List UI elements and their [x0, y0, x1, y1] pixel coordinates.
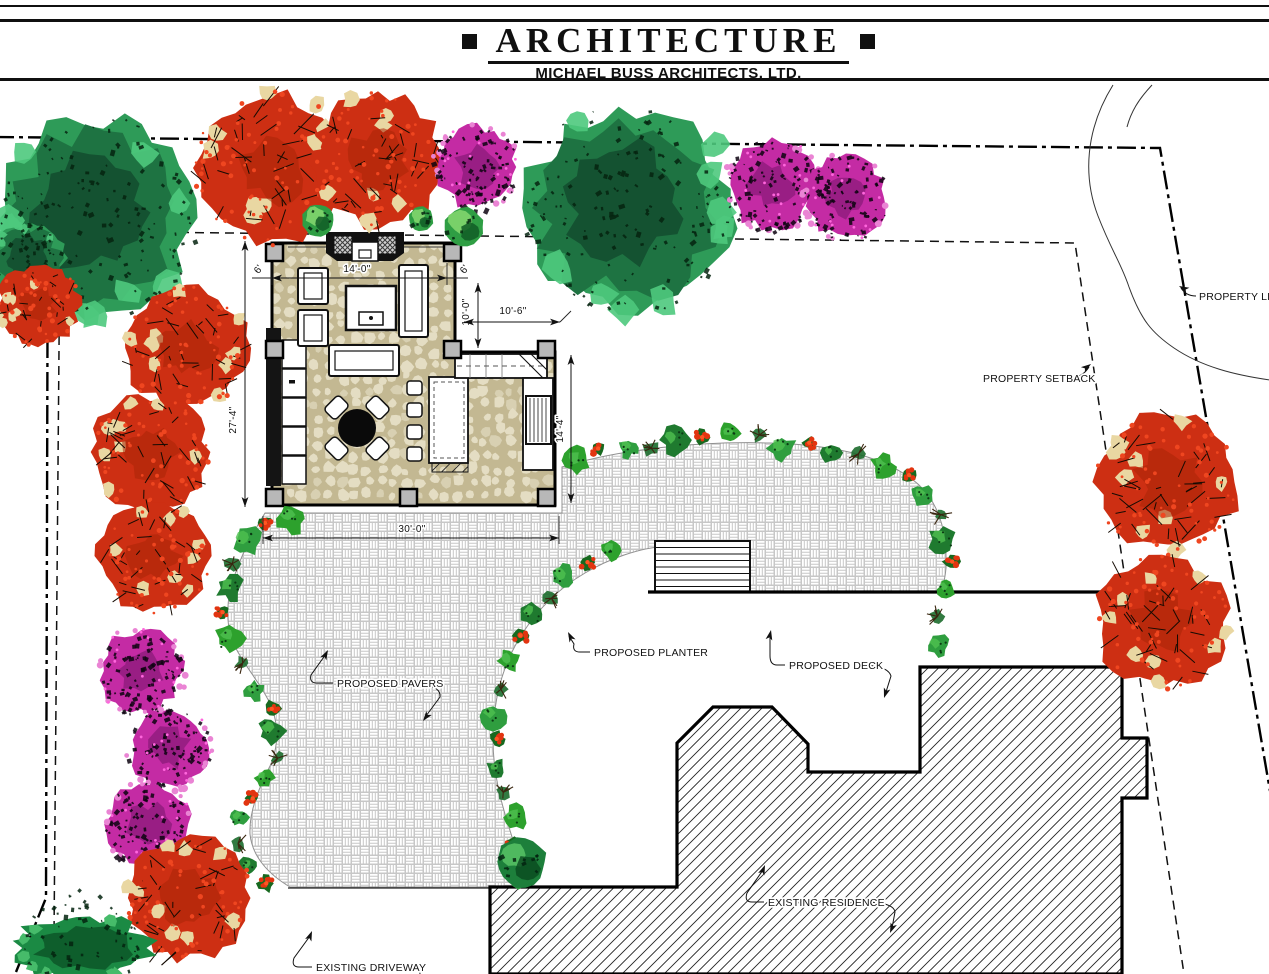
leader-arrow: [1081, 361, 1093, 372]
firm-title: ARCHITECTURE: [488, 23, 850, 64]
title-rule-bottom: [0, 78, 1269, 81]
pavilion-pier: [266, 489, 283, 506]
tree-red: [91, 394, 211, 511]
pavilion-pier: [538, 489, 555, 506]
title-square-left: [462, 34, 477, 49]
pavilion-pier: [538, 341, 555, 358]
dining-table: [338, 409, 376, 447]
leader-arrow: [305, 930, 315, 942]
landscape-plan-page: 14'-0"6'6'10'-0"10'-6"14'-4"27'-4"30'-0"…: [0, 0, 1269, 974]
tree-red: [1092, 409, 1238, 559]
annotation-text: PROPOSED PLANTER: [594, 647, 708, 659]
tree-magenta: [124, 707, 214, 793]
dimension-text: 6': [458, 263, 472, 276]
dimension-text: 14'-4": [555, 415, 566, 442]
dimension-text: 14'-0": [343, 264, 370, 275]
annotation-property-setback: PROPERTY SETBACK: [983, 361, 1096, 385]
tree-magenta: [97, 628, 189, 716]
dimension-text: 10'-6": [499, 306, 526, 317]
tree-magenta: [724, 137, 821, 235]
title-rule-top: [0, 5, 1269, 7]
dimension-text: 6': [252, 263, 266, 276]
pavilion: [266, 232, 557, 506]
pavilion-pier: [444, 244, 461, 261]
annotation-text: PROPOSED DECK: [789, 660, 883, 672]
pavilion-pier: [400, 489, 417, 506]
ground-surfaces: [228, 443, 1147, 974]
tree-magenta: [431, 122, 517, 215]
annotation-text: EXISTING DRIVEWAY: [316, 962, 426, 974]
existing-walk-curve: [1089, 85, 1269, 380]
dimension-dim-6-left: 6': [252, 263, 266, 276]
dimension-text: 30'-0": [398, 524, 425, 535]
pavilion-pier: [444, 341, 461, 358]
leader-arrow: [565, 630, 576, 642]
annotation-property-line: PROPERTY LINE: [1177, 283, 1269, 303]
dimension-dim-6-right: 6': [458, 263, 472, 276]
annotation-text: PROPOSED PAVERS: [337, 678, 443, 690]
tree-red: [95, 498, 212, 615]
tree-green: [522, 107, 737, 327]
pavilion-pier: [266, 244, 283, 261]
fireplace: [326, 232, 404, 261]
annotation-text: PROPERTY SETBACK: [983, 373, 1096, 385]
existing-walk-curve: [1127, 85, 1152, 127]
annotation-text: EXISTING RESIDENCE: [768, 897, 885, 909]
tree-ball: [409, 206, 433, 231]
title-square-right: [860, 34, 875, 49]
dimension-dim-10-0: 10'-0": [461, 283, 481, 348]
site-plan-drawing: 14'-0"6'6'10'-0"10'-6"14'-4"27'-4"30'-0"…: [0, 0, 1269, 974]
tree-red: [1096, 554, 1235, 691]
patio-steps: [655, 541, 750, 592]
pavilion-pier: [266, 341, 283, 358]
bar-island: [407, 377, 468, 472]
annotation-text: PROPERTY LINE: [1199, 291, 1269, 303]
dimension-text: 27'-4": [228, 406, 239, 433]
title-block: ARCHITECTURE MICHAEL BUSS ARCHITECTS, LT…: [0, 0, 1269, 84]
annotation-existing-driveway: EXISTING DRIVEWAY: [293, 930, 426, 974]
dimension-dim-10-6: 10'-6": [464, 306, 571, 325]
